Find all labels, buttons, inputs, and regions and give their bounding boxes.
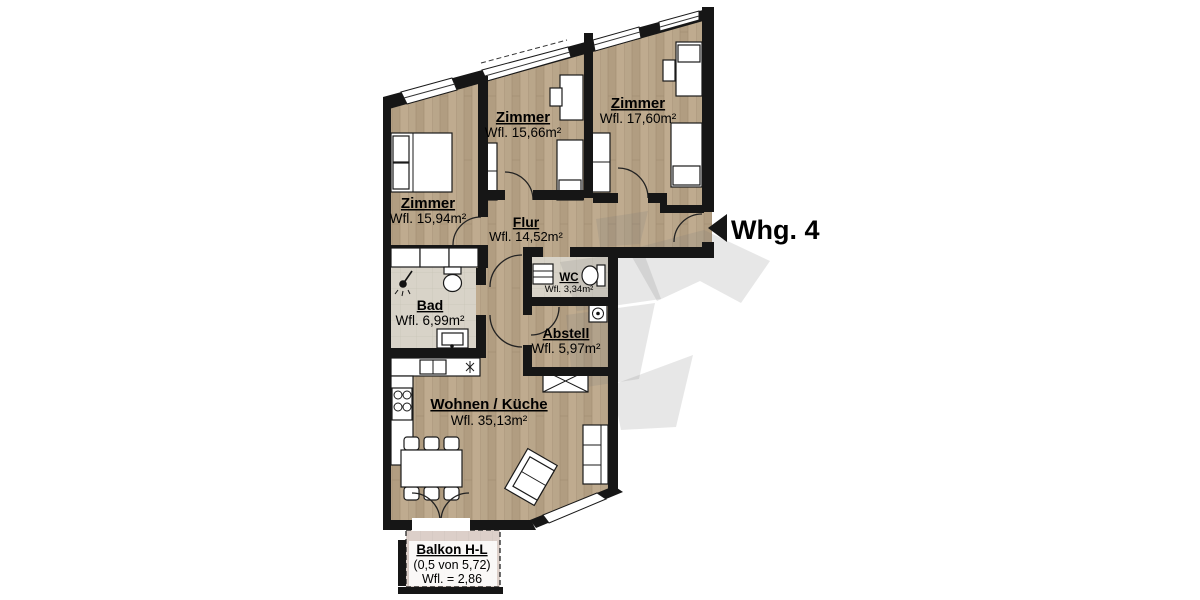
floorplan-page: Whg. 4 Zimmer Wfl. 15,94m² Zimmer Wfl. 1… bbox=[0, 0, 1200, 600]
room-label-zimmer-left-area: Wfl. 15,94m² bbox=[390, 211, 467, 226]
room-label-bad-name: Bad bbox=[417, 297, 443, 313]
room-label-wohnen-area: Wfl. 35,13m² bbox=[451, 413, 528, 428]
room-label-flur-name: Flur bbox=[513, 214, 540, 230]
balcony-label-calc: (0,5 von 5,72) bbox=[413, 558, 490, 572]
room-label-zimmer-middle-area: Wfl. 15,66m² bbox=[485, 125, 562, 140]
balcony-label-area: Wfl. = 2,86 bbox=[422, 572, 482, 586]
room-label-wc-area: Wfl. 3,34m² bbox=[545, 284, 594, 295]
room-label-zimmer-right-name: Zimmer bbox=[611, 95, 665, 112]
balcony-left-bar bbox=[398, 540, 406, 586]
sink-bad bbox=[437, 329, 468, 348]
room-label-wc-name: WC bbox=[559, 272, 578, 284]
washing-machine-icon bbox=[589, 305, 607, 322]
bed-single-right bbox=[671, 123, 702, 187]
sink-wc bbox=[533, 264, 553, 284]
room-label-wohnen-name: Wohnen / Küche bbox=[430, 396, 547, 413]
room-label-abstell-name: Abstell bbox=[543, 325, 590, 341]
room-label-zimmer-middle-name: Zimmer bbox=[496, 109, 550, 126]
toilet-bad bbox=[444, 267, 462, 292]
hall-closets bbox=[391, 248, 478, 267]
room-label-abstell-area: Wfl. 5,97m² bbox=[531, 341, 601, 356]
dining-table bbox=[401, 437, 462, 500]
room-label-zimmer-right-area: Wfl. 17,60m² bbox=[600, 111, 677, 126]
room-label-zimmer-left-name: Zimmer bbox=[401, 195, 455, 212]
balcony-label-name: Balkon H-L bbox=[416, 542, 487, 557]
room-label-flur-area: Wfl. 14,52m² bbox=[489, 229, 563, 244]
toilet-wc bbox=[582, 265, 605, 286]
stove-icon bbox=[392, 388, 412, 420]
floor-plan-svg: Whg. 4 Zimmer Wfl. 15,94m² Zimmer Wfl. 1… bbox=[0, 0, 1200, 600]
wardrobe bbox=[592, 133, 610, 192]
balcony-bottom-bar bbox=[398, 587, 503, 594]
bed-double bbox=[391, 133, 452, 192]
sofa bbox=[583, 425, 608, 484]
entrance-label: Whg. 4 bbox=[731, 215, 820, 245]
room-label-bad-area: Wfl. 6,99m² bbox=[395, 313, 465, 328]
